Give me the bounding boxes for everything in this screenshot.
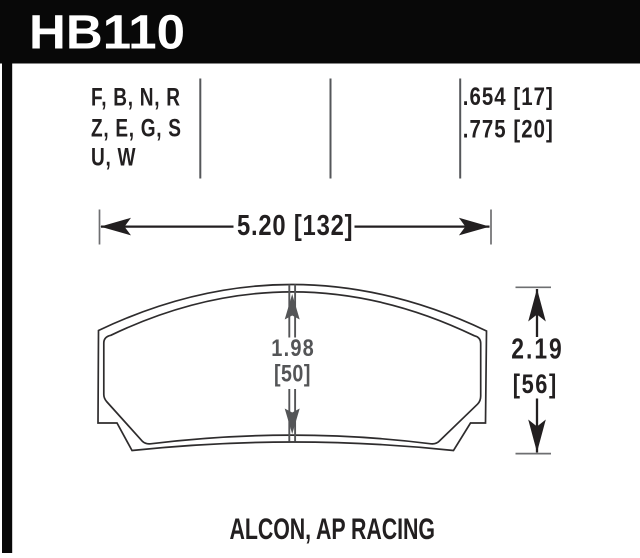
svg-text:[56]: [56] [513, 370, 556, 400]
svg-text:2.19: 2.19 [511, 334, 561, 365]
svg-text:.654 [17]: .654 [17] [463, 82, 553, 110]
svg-text:HB110: HB110 [29, 7, 185, 60]
svg-text:[50]: [50] [274, 360, 310, 387]
svg-text:.775 [20]: .775 [20] [463, 115, 553, 143]
svg-text:U, W: U, W [91, 143, 136, 171]
svg-text:Z, E, G, S: Z, E, G, S [91, 114, 181, 142]
svg-text:1.98: 1.98 [271, 334, 313, 361]
svg-text:F, B, N, R: F, B, N, R [91, 83, 180, 111]
svg-text:5.20 [132]: 5.20 [132] [237, 209, 353, 242]
svg-text:ALCON, AP RACING: ALCON, AP RACING [230, 514, 435, 546]
